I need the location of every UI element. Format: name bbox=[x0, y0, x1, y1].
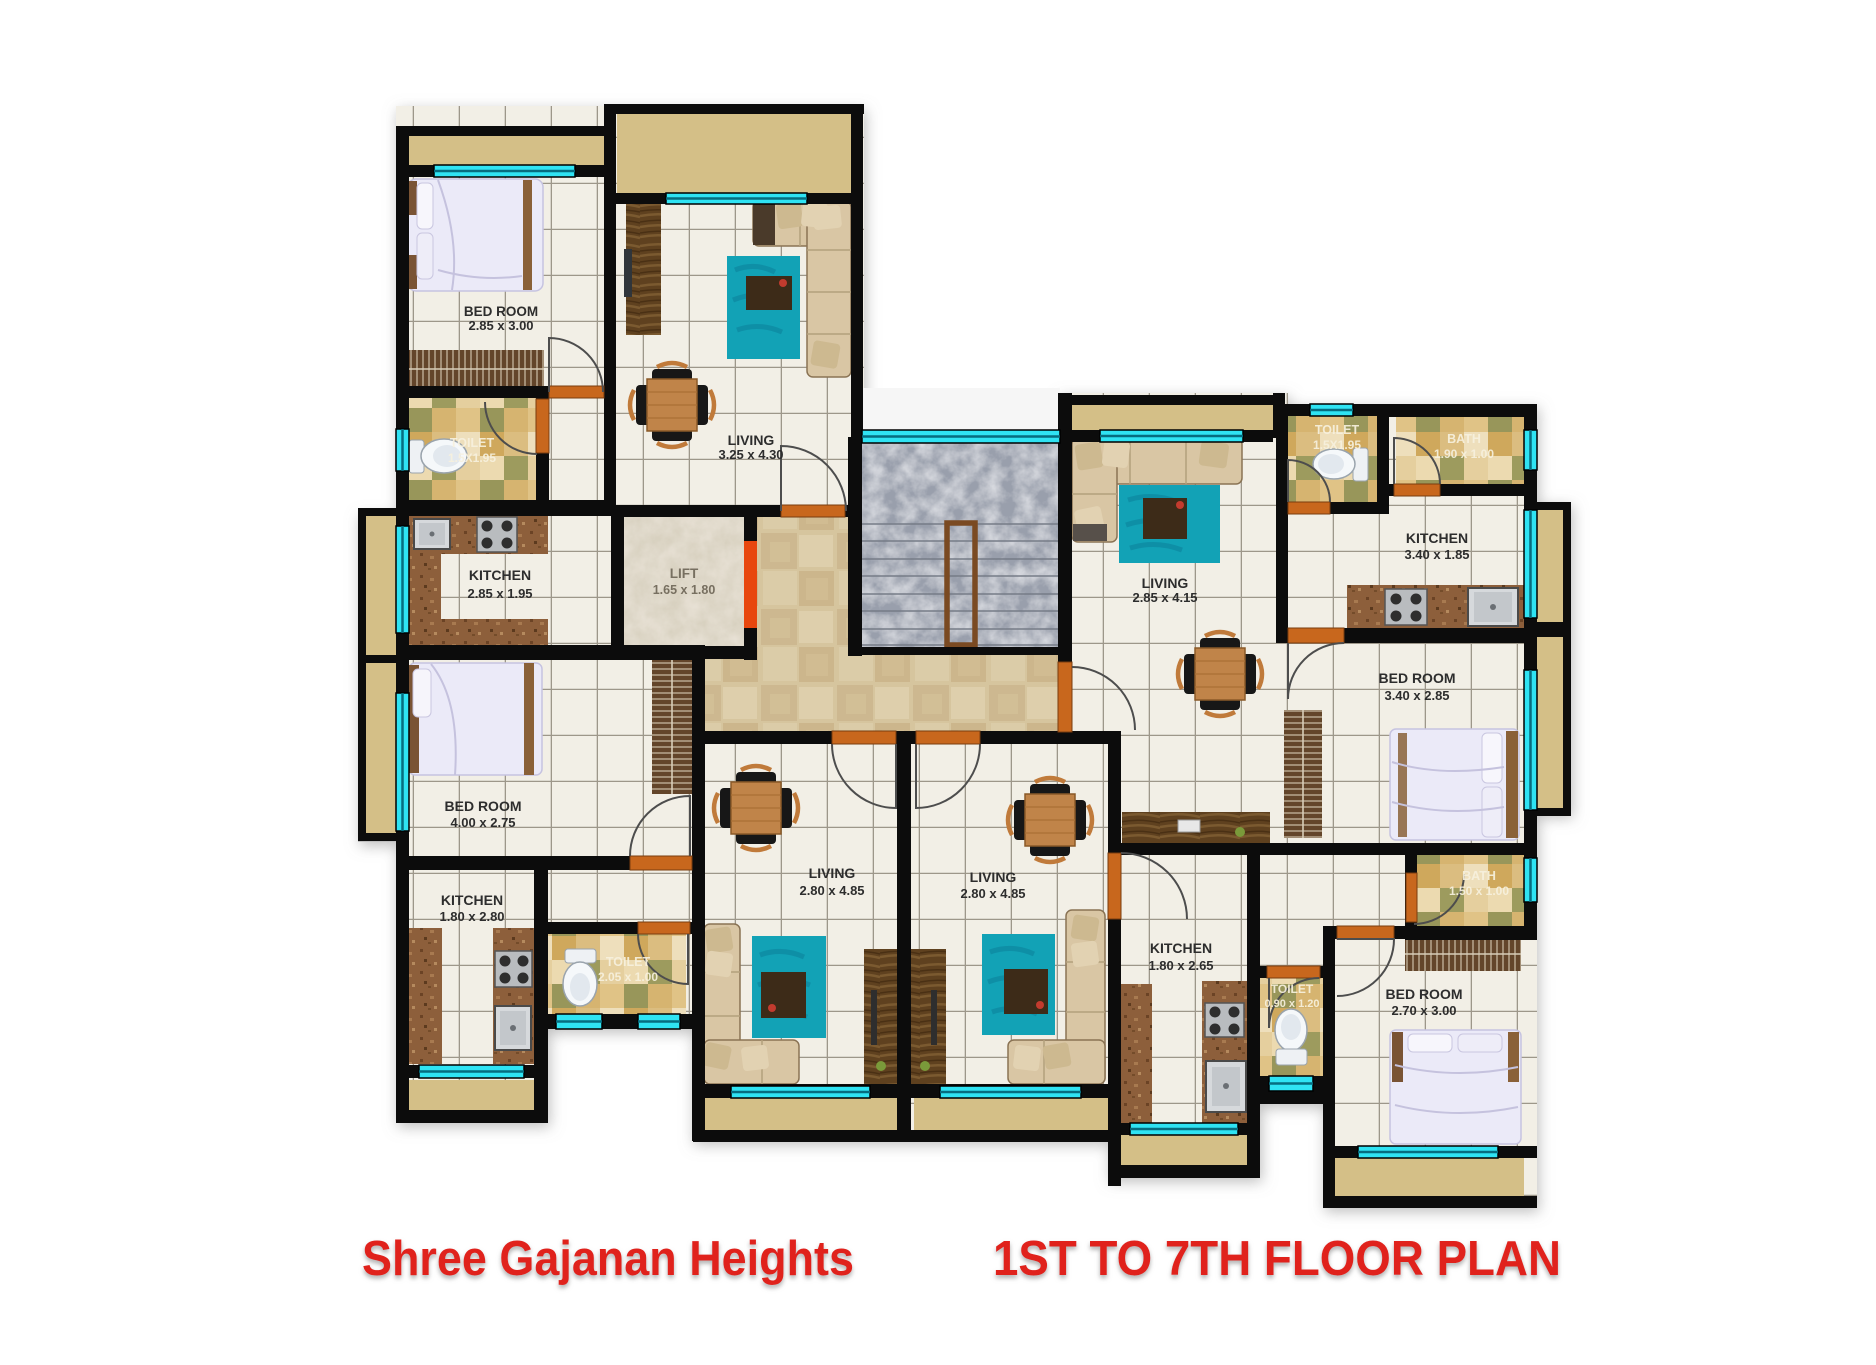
svg-text:BED ROOM: BED ROOM bbox=[445, 798, 522, 814]
svg-text:KITCHEN: KITCHEN bbox=[469, 567, 531, 583]
svg-text:TOILET: TOILET bbox=[606, 955, 651, 969]
svg-text:0.90 x 1.20: 0.90 x 1.20 bbox=[1264, 998, 1319, 1010]
svg-text:BATH: BATH bbox=[1462, 869, 1496, 883]
svg-text:3.40 x 1.85: 3.40 x 1.85 bbox=[1404, 547, 1469, 562]
svg-text:2.80 x 4.85: 2.80 x 4.85 bbox=[960, 886, 1025, 901]
svg-text:2.85 x 3.00: 2.85 x 3.00 bbox=[468, 318, 533, 333]
svg-text:1.65 x 1.80: 1.65 x 1.80 bbox=[653, 583, 716, 597]
svg-text:2.85 x 4.15: 2.85 x 4.15 bbox=[1132, 590, 1197, 605]
svg-text:1.80 x 2.65: 1.80 x 2.65 bbox=[1148, 958, 1213, 973]
svg-text:2.85 x 1.95: 2.85 x 1.95 bbox=[467, 586, 532, 601]
svg-text:2.05 x 1.00: 2.05 x 1.00 bbox=[598, 970, 658, 984]
svg-text:KITCHEN: KITCHEN bbox=[1150, 940, 1212, 956]
svg-text:TOILET: TOILET bbox=[1315, 423, 1360, 437]
svg-text:3.25 x 4.30: 3.25 x 4.30 bbox=[718, 447, 783, 462]
svg-text:2.70 x 3.00: 2.70 x 3.00 bbox=[1391, 1003, 1456, 1018]
svg-text:TOILET: TOILET bbox=[1271, 982, 1314, 996]
svg-text:1.5X1.95: 1.5X1.95 bbox=[448, 451, 496, 465]
svg-text:LIVING: LIVING bbox=[970, 869, 1017, 885]
svg-text:BATH: BATH bbox=[1447, 432, 1481, 446]
svg-text:LIFT: LIFT bbox=[670, 566, 699, 581]
svg-text:3.40 x 2.85: 3.40 x 2.85 bbox=[1384, 688, 1449, 703]
svg-text:BED ROOM: BED ROOM bbox=[464, 304, 538, 319]
svg-text:KITCHEN: KITCHEN bbox=[1406, 530, 1468, 546]
svg-text:LIVING: LIVING bbox=[728, 432, 775, 448]
svg-text:BED ROOM: BED ROOM bbox=[1386, 986, 1463, 1002]
svg-text:Shree Gajanan Heights: Shree Gajanan Heights bbox=[362, 1232, 854, 1286]
svg-text:1.50 x 1.00: 1.50 x 1.00 bbox=[1449, 884, 1509, 898]
svg-text:LIVING: LIVING bbox=[1142, 575, 1189, 591]
svg-text:1.5X1.95: 1.5X1.95 bbox=[1313, 438, 1361, 452]
svg-text:BED ROOM: BED ROOM bbox=[1379, 670, 1456, 686]
svg-text:1.90 x 1.00: 1.90 x 1.00 bbox=[1434, 447, 1494, 461]
svg-text:KITCHEN: KITCHEN bbox=[441, 892, 503, 908]
svg-text:2.80 x 4.85: 2.80 x 4.85 bbox=[799, 883, 864, 898]
svg-text:LIVING: LIVING bbox=[809, 865, 856, 881]
svg-text:TOILET: TOILET bbox=[450, 436, 495, 450]
svg-text:1.80 x 2.80: 1.80 x 2.80 bbox=[439, 909, 504, 924]
svg-text:1ST TO 7TH FLOOR PLAN: 1ST TO 7TH FLOOR PLAN bbox=[993, 1232, 1561, 1286]
svg-text:4.00 x 2.75: 4.00 x 2.75 bbox=[450, 815, 515, 830]
